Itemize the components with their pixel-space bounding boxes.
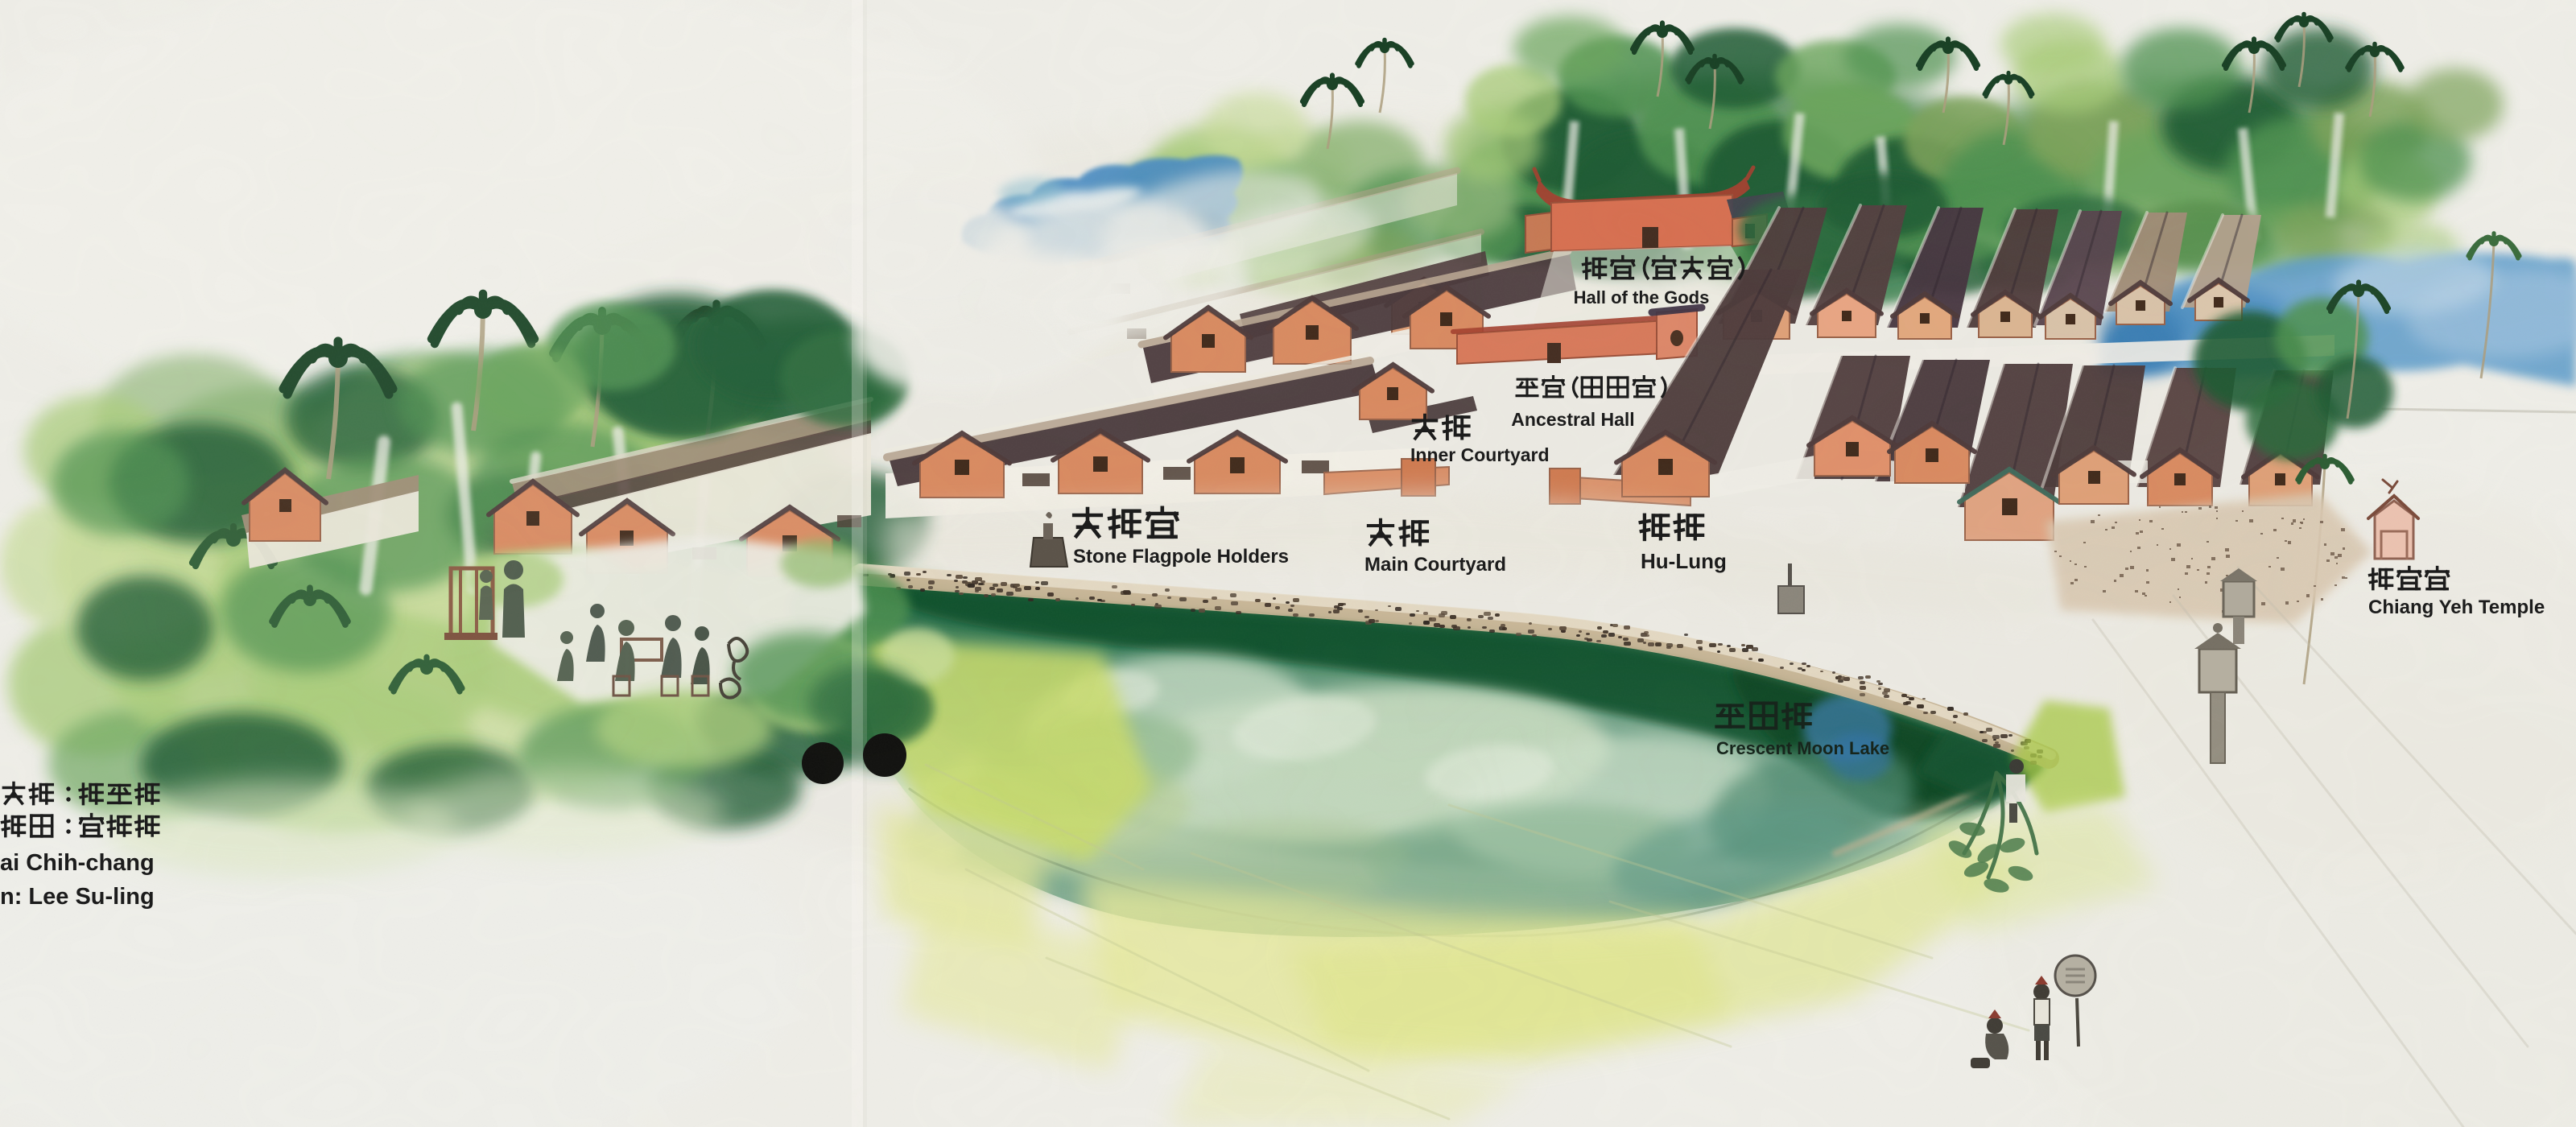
svg-text:Main Courtyard: Main Courtyard bbox=[1364, 554, 1506, 576]
svg-text:n: Lee Su-ling: n: Lee Su-ling bbox=[0, 884, 155, 910]
svg-text:Stone Flagpole Holders: Stone Flagpole Holders bbox=[1073, 546, 1289, 568]
svg-text:Crescent Moon Lake: Crescent Moon Lake bbox=[1716, 738, 1889, 758]
svg-text:Chiang Yeh Temple: Chiang Yeh Temple bbox=[2368, 597, 2545, 618]
svg-text:Hall of the Gods: Hall of the Gods bbox=[1574, 287, 1710, 308]
svg-text:ai Chih-chang: ai Chih-chang bbox=[0, 850, 155, 876]
svg-text:Ancestral Hall: Ancestral Hall bbox=[1511, 409, 1634, 430]
svg-text:Hu-Lung: Hu-Lung bbox=[1641, 549, 1727, 573]
svg-text:Inner Courtyard: Inner Courtyard bbox=[1410, 444, 1550, 465]
